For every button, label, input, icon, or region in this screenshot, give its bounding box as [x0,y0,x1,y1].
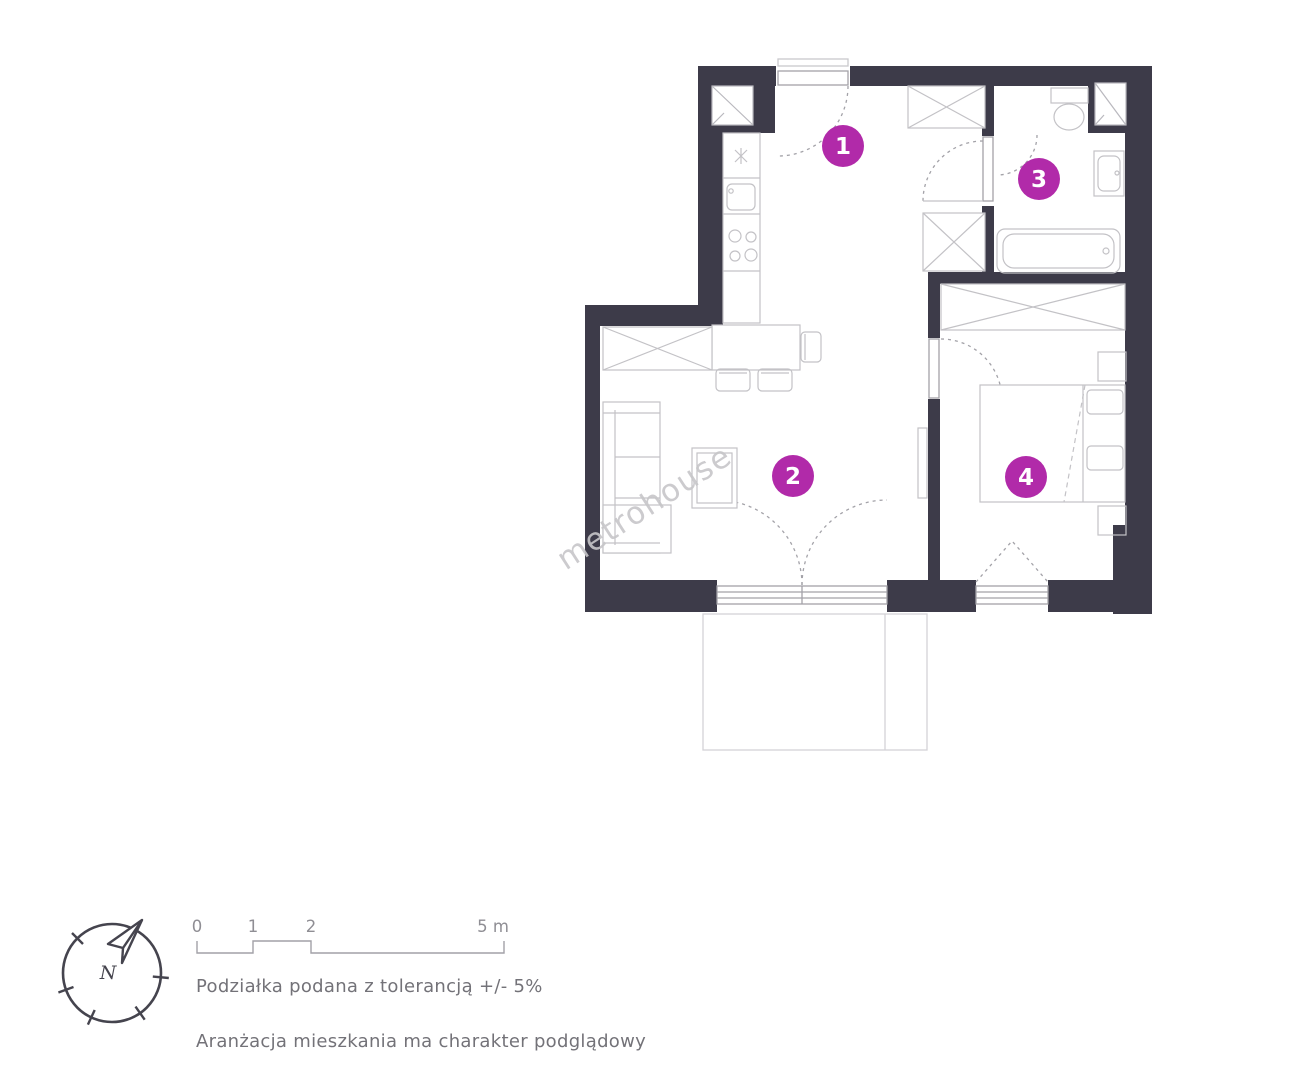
bathtub [997,229,1120,273]
room-marker-2: 2 [772,455,814,497]
scale-end-label: 5 m [477,917,509,936]
balcony-door [717,500,887,604]
room-marker-3: 3 [1018,158,1060,200]
hall-closet-side [923,213,985,271]
tolerance-note: Podziałka podana z tolerancją +/- 5% [196,976,543,997]
living-wardrobe [603,327,712,370]
scale-bar: 0 1 2 5 m [192,917,509,953]
entrance-door-leaf [778,71,848,85]
nightstand-top [1098,352,1126,381]
room-number-2: 2 [785,464,801,490]
bed [980,385,1125,502]
shaft-bathroom [1095,83,1126,125]
compass: N [58,920,168,1025]
toilet [1051,88,1088,130]
bedroom-door-leaf [929,339,939,398]
floor-plan-page: 1 2 3 4 metrohouse N [0,0,1303,1080]
scale-tick-1: 1 [248,917,259,936]
kitchen-counter [723,133,760,323]
bathroom-sink [1094,151,1124,196]
room-marker-1: 1 [822,125,864,167]
shaft-kitchen [712,86,753,125]
bedroom-wardrobe [941,284,1125,330]
dining-table [712,325,821,391]
floor-plan-canvas: 1 2 3 4 metrohouse N [0,0,1303,1080]
disclaimer-note: Aranżacja mieszkania ma charakter podglą… [196,1031,646,1052]
scale-tick-0: 0 [192,917,203,936]
balcony [703,614,927,750]
room-number-3: 3 [1031,167,1047,193]
room-marker-4: 4 [1005,456,1047,498]
bathroom-door-leaf [983,137,993,201]
compass-north-label: N [99,962,118,984]
bathroom-door-swing [923,141,983,201]
entrance-threshold [778,59,848,66]
scale-tick-2: 2 [306,917,317,936]
room-number-4: 4 [1018,465,1034,491]
hall-closet-top [908,86,985,128]
room-number-1: 1 [835,134,851,160]
tv [918,428,927,498]
bedroom-window [976,541,1048,604]
